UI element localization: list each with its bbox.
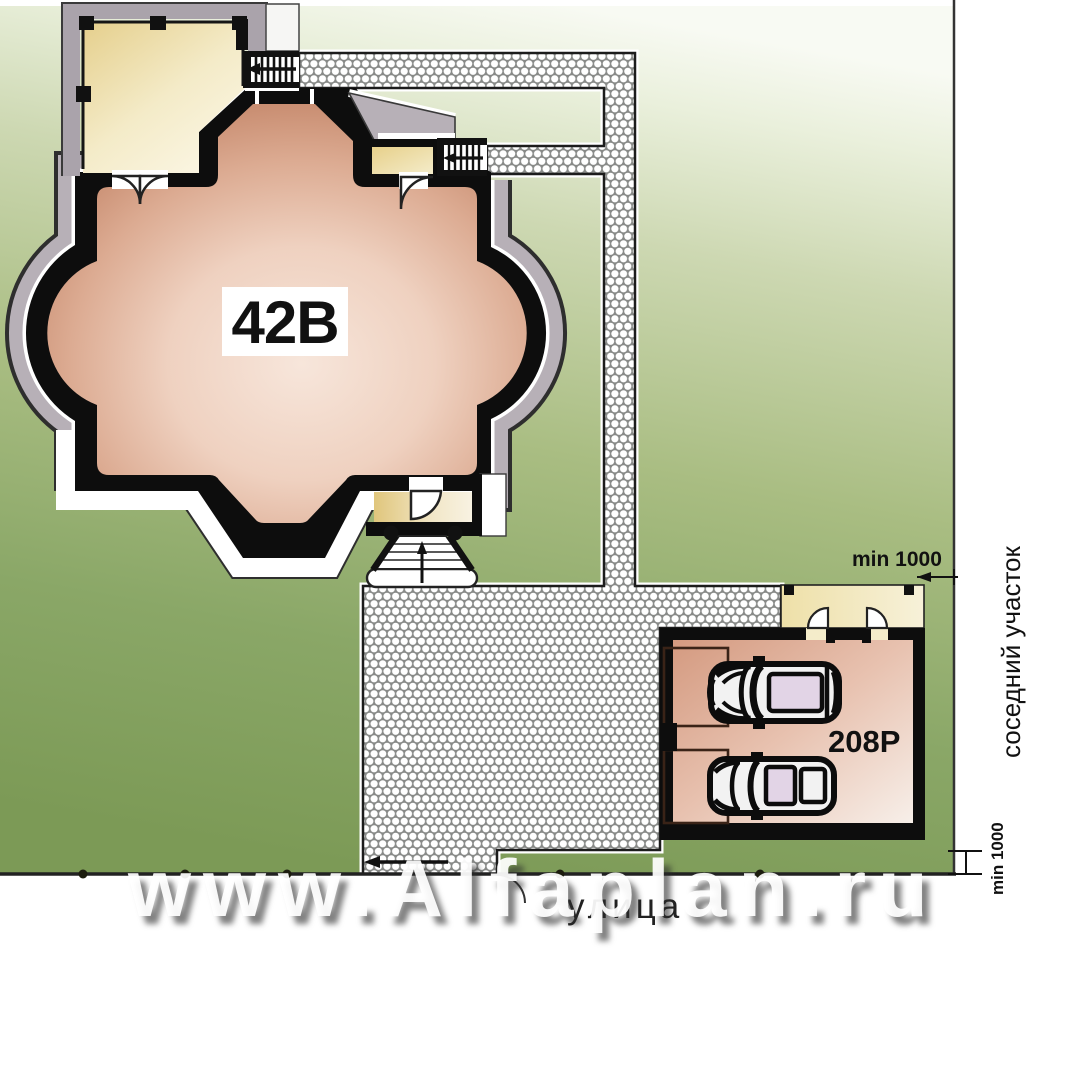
svg-text:42В: 42В: [231, 289, 338, 356]
svg-text:min 1000: min 1000: [988, 822, 1007, 895]
svg-text:208Р: 208Р: [828, 724, 900, 759]
svg-text:min 1000: min 1000: [852, 548, 942, 571]
svg-text:соседний участок: соседний участок: [996, 545, 1026, 758]
